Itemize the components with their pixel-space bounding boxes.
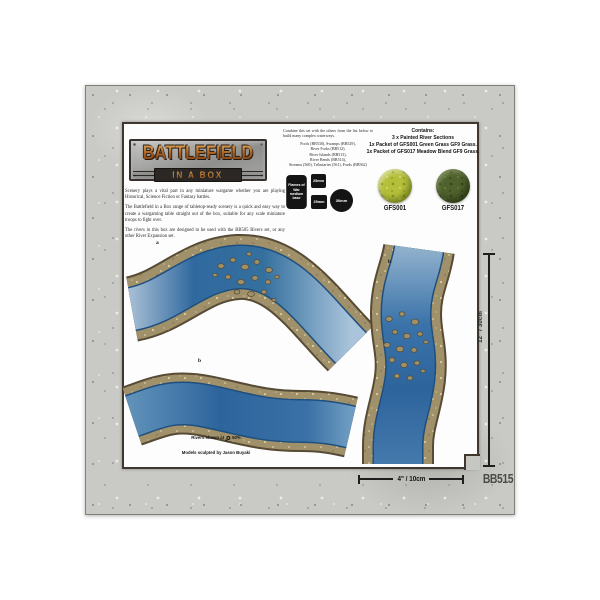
contains-line: 1x Packet of GFS017 Meadow Blend GF9 Gra… — [366, 149, 480, 156]
intro-paragraph-1: Scenery plays a vital part in any miniat… — [125, 189, 285, 202]
rivet-icon — [260, 143, 263, 146]
sculptor-credit: Models sculpted by Jason Buyaki — [159, 450, 273, 455]
contains-line: 1x Packet of GFS001 Green Grass GF9 Gras… — [366, 142, 480, 149]
horizontal-dimension-line — [360, 478, 393, 480]
contains-line: 3 x Painted River Sections — [366, 135, 480, 142]
intro-paragraph-3: The rivers in this box are designed to b… — [125, 228, 285, 241]
combine-list-item: Streams (560), Tributaries (561), Fords … — [283, 162, 373, 167]
vertical-dimension-label: 12" / 30cm — [478, 311, 484, 343]
flames-of-war-base-badge: Flames of War medium base — [286, 175, 307, 209]
river-label-b1: b — [198, 358, 201, 364]
magnifier-icon — [226, 436, 230, 440]
combine-intro: Combine this set with the others from th… — [283, 128, 373, 139]
horizontal-dimension: 4" / 10cm — [358, 474, 464, 484]
grass-swatch-label: GFS001 — [375, 205, 416, 212]
logo-banner: IN A BOX — [154, 168, 242, 182]
river-label-b2: b — [388, 259, 391, 265]
contains-block: Contains: 3 x Painted River Sections 1x … — [366, 128, 480, 156]
base-size-round: 30mm — [330, 189, 353, 212]
vertical-dimension-line — [488, 253, 490, 466]
rivet-icon — [133, 143, 136, 146]
horizontal-dimension-label: 4" / 10cm — [394, 476, 427, 483]
logo-subtitle: IN A BOX — [173, 170, 224, 180]
river-section-c — [398, 249, 419, 464]
vertical-dimension-cap-bottom — [483, 465, 495, 467]
horizontal-dimension-cap-right — [462, 475, 464, 484]
river-section-b — [132, 403, 351, 427]
intro-paragraph-2: The Battlefield in a Box range of tablet… — [125, 205, 285, 224]
horizontal-dimension-line — [429, 478, 462, 480]
battlefield-logo-plate: BATTLEFIELD IN A BOX — [129, 139, 267, 181]
intro-text-block: Scenery plays a vital part in any miniat… — [125, 189, 285, 244]
box-front-image: BATTLEFIELD IN A BOX Scenery plays a vit… — [0, 0, 600, 600]
combine-sets-block: Combine this set with the others from th… — [283, 128, 373, 168]
scale-note: Rivers shown at 50% — [159, 435, 273, 440]
grass-swatch-gfs017 — [436, 169, 470, 203]
base-size-square-top: 25mm — [311, 174, 326, 188]
contains-title: Contains: — [366, 128, 480, 135]
scale-note-value: 50% — [232, 435, 241, 440]
scale-note-prefix: Rivers shown at — [191, 435, 224, 440]
stone-border-frame: BATTLEFIELD IN A BOX Scenery plays a vit… — [85, 85, 515, 515]
product-sku: BB515 — [482, 471, 514, 486]
banner-line-right — [241, 171, 263, 176]
base-size-square-bottom: 25mm — [311, 195, 327, 209]
grass-swatch-gfs001 — [378, 169, 412, 203]
river-label-a: a — [156, 240, 159, 246]
grass-swatch-label: GFS017 — [433, 205, 474, 212]
logo-title: BATTLEFIELD — [140, 143, 255, 165]
banner-line-left — [133, 171, 155, 176]
vertical-dimension-cap-top — [483, 253, 495, 255]
corner-notch — [464, 454, 480, 470]
